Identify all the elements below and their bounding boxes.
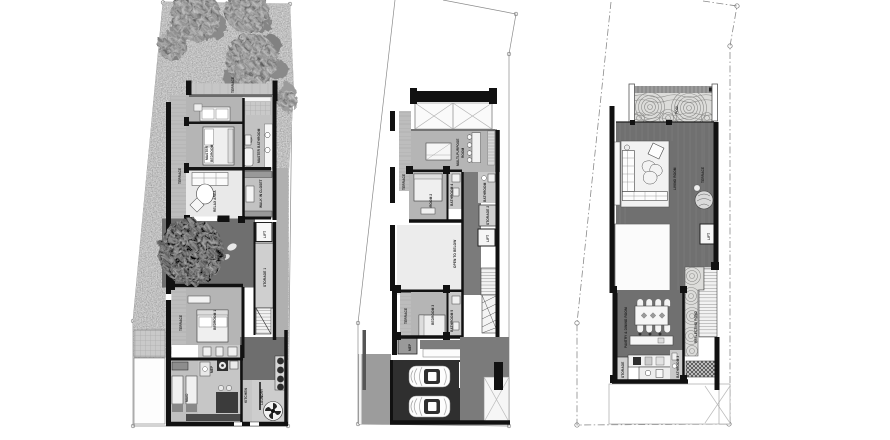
svg-text:TERRACE: TERRACE (231, 77, 235, 93)
svg-text:BEDROOM: BEDROOM (210, 144, 214, 162)
svg-text:BATHROOM 3: BATHROOM 3 (676, 356, 680, 378)
svg-text:OPEN TO BELOW: OPEN TO BELOW (453, 240, 457, 268)
svg-text:BATHROOM: BATHROOM (483, 182, 487, 202)
svg-text:STORAGE 1: STORAGE 1 (263, 268, 267, 287)
svg-text:WALK IN CLOSET: WALK IN CLOSET (259, 179, 263, 208)
svg-text:BATHROOM 5: BATHROOM 5 (450, 310, 454, 332)
svg-text:MEP: MEP (210, 365, 214, 373)
svg-text:KITCHEN: KITCHEN (244, 388, 248, 403)
svg-text:REFLECTING POND: REFLECTING POND (694, 310, 698, 343)
svg-text:BEDROOM 3: BEDROOM 3 (431, 305, 435, 325)
svg-text:BEDROOM 1: BEDROOM 1 (213, 310, 217, 330)
svg-text:TERRACE: TERRACE (402, 174, 406, 190)
svg-text:LIVING ROOM: LIVING ROOM (673, 167, 677, 190)
svg-text:TERRACE: TERRACE (179, 315, 183, 331)
svg-text:LIFT: LIFT (707, 233, 711, 240)
svg-text:TERRACE: TERRACE (404, 308, 408, 324)
svg-text:LIFT: LIFT (263, 231, 267, 238)
svg-text:MAID: MAID (185, 393, 189, 402)
svg-text:PANTRY & DINING ROOM: PANTRY & DINING ROOM (624, 307, 628, 348)
svg-text:RELAX AREA: RELAX AREA (213, 190, 217, 212)
svg-text:TERRACE: TERRACE (178, 168, 182, 184)
svg-text:STORAGE: STORAGE (621, 362, 625, 378)
svg-text:TERRACE: TERRACE (701, 167, 705, 183)
svg-text:BATHROOM 4: BATHROOM 4 (450, 184, 454, 206)
svg-text:ROOM: ROOM (461, 147, 465, 158)
svg-text:LIFT: LIFT (486, 235, 490, 242)
svg-text:MEP: MEP (408, 343, 412, 351)
svg-text:MASTER: MASTER (205, 145, 209, 160)
svg-text:MULTI-PURPOSE: MULTI-PURPOSE (456, 139, 460, 166)
svg-text:STORAGE 2: STORAGE 2 (486, 206, 490, 225)
svg-text:POOL: POOL (675, 105, 679, 114)
svg-text:MASTER BATHROOM: MASTER BATHROOM (257, 128, 261, 163)
